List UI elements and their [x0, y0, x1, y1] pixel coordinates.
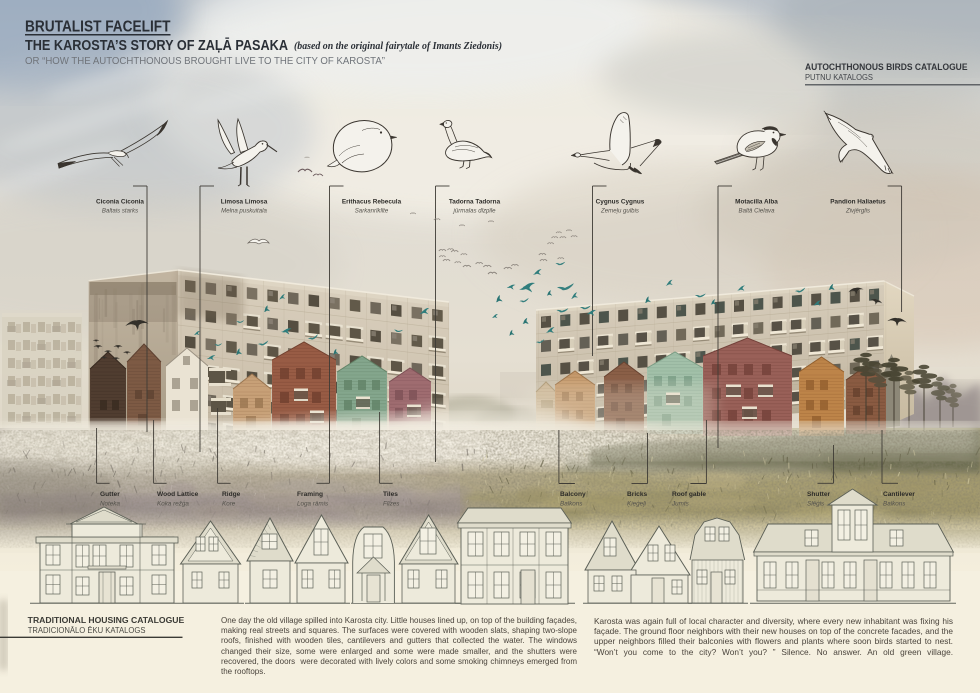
svg-text:BRUTALIST FACELIFT: BRUTALIST FACELIFT [25, 19, 171, 36]
svg-text:Wood Lattice: Wood Lattice [157, 491, 199, 498]
svg-text:Ridge: Ridge [222, 491, 241, 498]
svg-text:Motacilla Alba: Motacilla Alba [735, 199, 778, 206]
svg-text:jūrmalas dīzpīle: jūrmalas dīzpīle [453, 208, 497, 215]
svg-text:Balkons: Balkons [560, 501, 583, 508]
svg-text:Kore: Kore [222, 501, 236, 508]
svg-text:Zemeļu gulbis: Zemeļu gulbis [600, 208, 639, 215]
svg-text:Sarkanrīklīte: Sarkanrīklīte [355, 208, 389, 215]
svg-text:Jumts: Jumts [671, 501, 690, 508]
svg-text:Gutter: Gutter [100, 491, 120, 498]
svg-text:TRADITIONAL HOUSING CATALOGUE: TRADITIONAL HOUSING CATALOGUE [28, 615, 185, 625]
svg-text:Cantilever: Cantilever [883, 491, 915, 498]
svg-text:Flīzes: Flīzes [383, 501, 400, 508]
svg-text:TRADICIONĀLO ĒKU KATALOGS: TRADICIONĀLO ĒKU KATALOGS [28, 626, 146, 635]
svg-text:Limosa Limosa: Limosa Limosa [221, 199, 268, 206]
svg-text:Shutter: Shutter [807, 491, 831, 498]
svg-text:Zivjērglis: Zivjērglis [845, 208, 870, 215]
svg-text:Framing: Framing [297, 491, 323, 498]
svg-text:Ķieģeļi: Ķieģeļi [627, 500, 647, 508]
svg-text:Ciconia Ciconia: Ciconia Ciconia [96, 199, 144, 206]
svg-text:(based on the original fairyta: (based on the original fairytale of Iman… [294, 40, 502, 52]
svg-text:Bricks: Bricks [627, 491, 647, 498]
svg-text:PUTNU KATALOGS: PUTNU KATALOGS [805, 73, 873, 82]
svg-text:Tadorna Tadorna: Tadorna Tadorna [449, 199, 501, 206]
svg-text:AUTOCHTHONOUS BIRDS CATALOGUE: AUTOCHTHONOUS BIRDS CATALOGUE [805, 62, 968, 72]
svg-text:Koka režģa: Koka režģa [157, 500, 189, 508]
svg-text:Tiles: Tiles [383, 491, 398, 498]
svg-text:Balcony: Balcony [560, 491, 586, 498]
svg-text:Melna puskuitala: Melna puskuitala [221, 208, 267, 215]
svg-text:Slēģis: Slēģis [807, 500, 825, 508]
svg-text:Baltā Cielava: Baltā Cielava [739, 208, 776, 215]
svg-text:Roof gable: Roof gable [672, 491, 706, 498]
svg-text:OR “HOW THE AUTOCHTHONOUS BROU: OR “HOW THE AUTOCHTHONOUS BROUGHT LIVE T… [25, 56, 385, 67]
svg-text:THE KAROSTA’S STORY OF ZAĻĀ PA: THE KAROSTA’S STORY OF ZAĻĀ PASAKA [25, 37, 288, 54]
svg-text:Baltais starks: Baltais starks [102, 208, 138, 215]
svg-text:Erithacus Rebecula: Erithacus Rebecula [342, 199, 402, 206]
svg-text:Pandion Haliaetus: Pandion Haliaetus [830, 199, 886, 206]
svg-text:Noteka: Noteka [100, 501, 120, 508]
svg-text:Loga rāmis: Loga rāmis [297, 501, 329, 508]
svg-text:Cygnus Cygnus: Cygnus Cygnus [596, 199, 645, 206]
svg-text:Balkons: Balkons [883, 501, 906, 508]
